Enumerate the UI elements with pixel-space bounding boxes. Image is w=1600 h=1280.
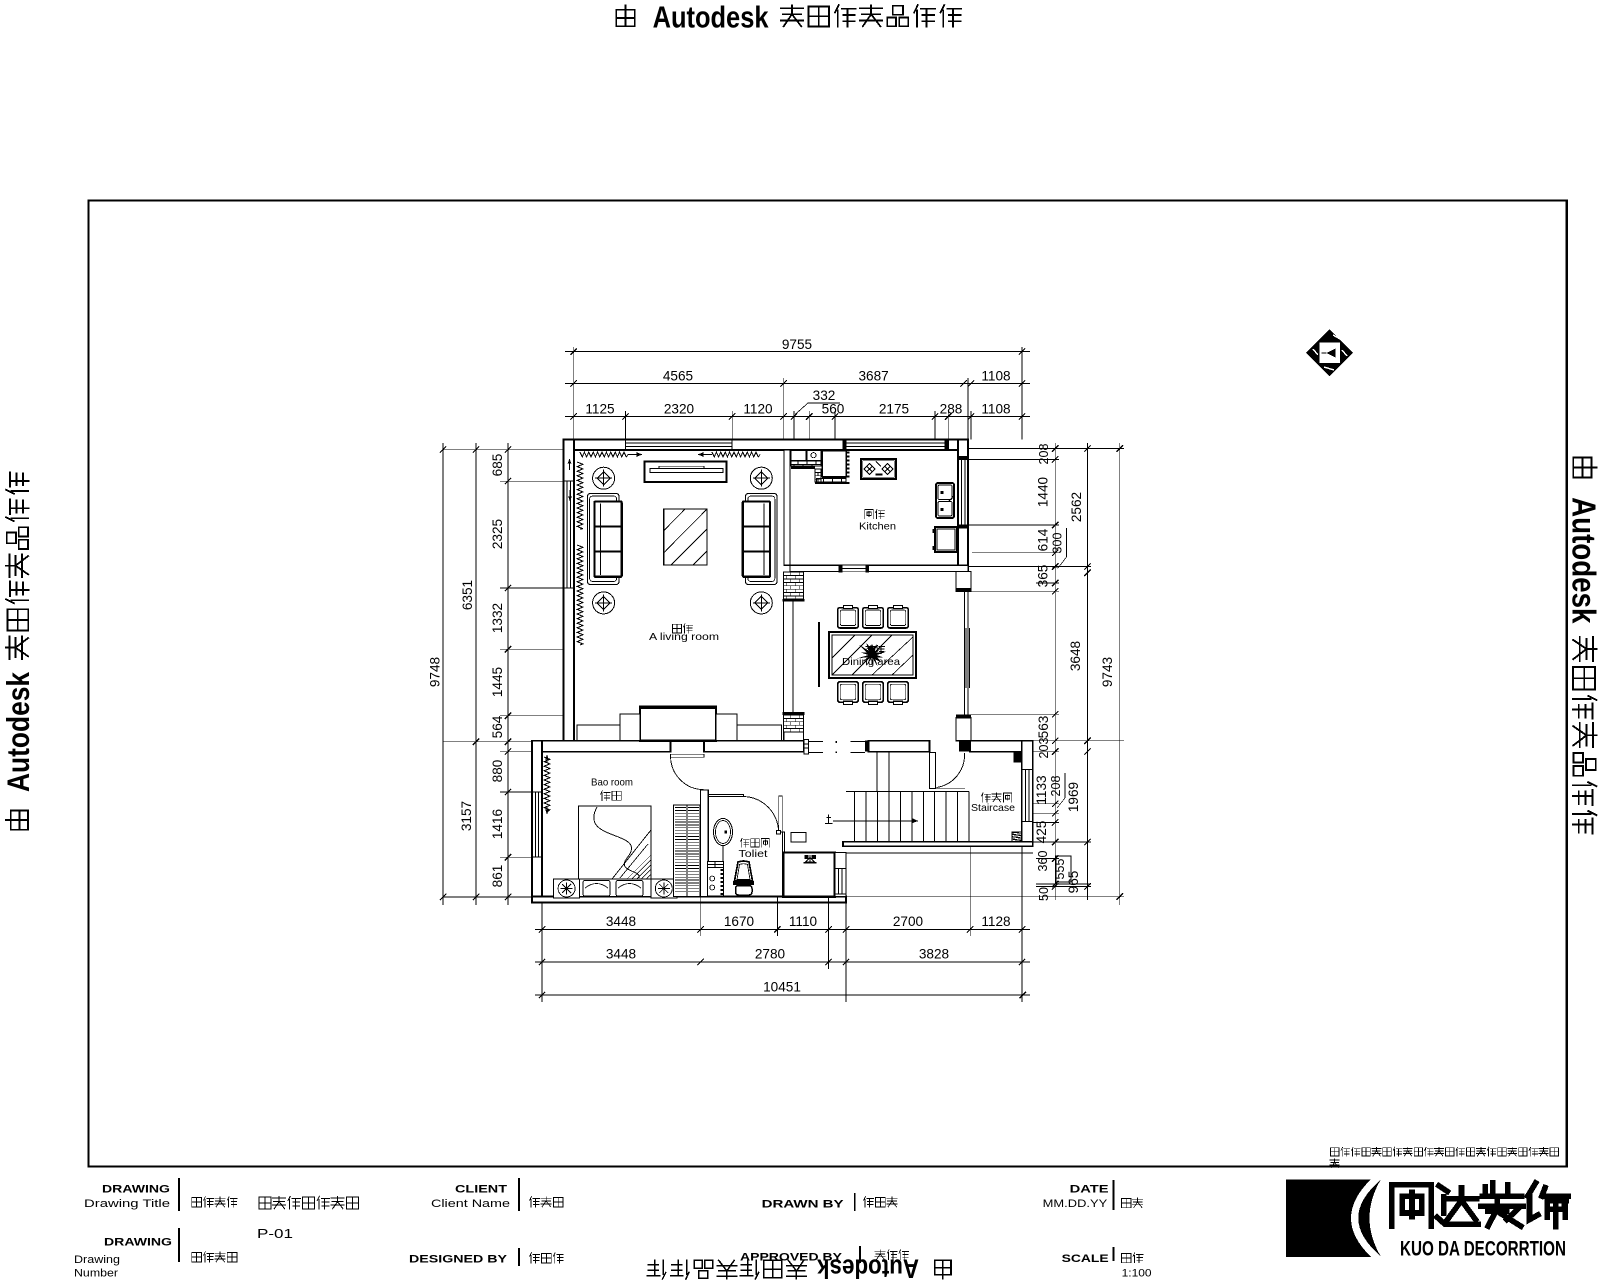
- svg-text:CLIENT: CLIENT: [455, 1184, 508, 1196]
- svg-text:3648: 3648: [1068, 641, 1083, 671]
- svg-text:360: 360: [1036, 851, 1050, 872]
- svg-text:Autodesk: Autodesk: [1, 672, 36, 792]
- svg-text:2320: 2320: [664, 402, 695, 417]
- svg-text:Drawing: Drawing: [74, 1254, 120, 1266]
- svg-text:1133: 1133: [1034, 775, 1049, 804]
- svg-text:288: 288: [940, 402, 963, 417]
- svg-text:2175: 2175: [879, 402, 909, 417]
- svg-text:9755: 9755: [782, 337, 812, 352]
- svg-text:2700: 2700: [893, 914, 924, 929]
- svg-text:Client Name: Client Name: [431, 1198, 510, 1210]
- svg-text:P-01: P-01: [257, 1227, 293, 1241]
- svg-text:555: 555: [1053, 859, 1067, 880]
- svg-text:2780: 2780: [755, 947, 786, 962]
- svg-text:DRAWN BY: DRAWN BY: [762, 1199, 845, 1211]
- svg-text:425: 425: [1034, 821, 1049, 844]
- svg-text:1969: 1969: [1066, 782, 1081, 812]
- svg-text:DATE: DATE: [1070, 1184, 1109, 1196]
- svg-text:208: 208: [1037, 444, 1051, 465]
- svg-text:1445: 1445: [490, 667, 505, 697]
- svg-text:2562: 2562: [1069, 492, 1084, 522]
- svg-text:880: 880: [490, 759, 505, 782]
- svg-text:10451: 10451: [763, 980, 801, 995]
- svg-text:9748: 9748: [428, 657, 443, 687]
- svg-text:203: 203: [1037, 738, 1051, 759]
- svg-text:1670: 1670: [724, 914, 755, 929]
- svg-text:1332: 1332: [490, 603, 505, 633]
- svg-text:DRAWING: DRAWING: [102, 1184, 170, 1196]
- svg-text:965: 965: [1066, 871, 1081, 894]
- svg-text:Drawing Title: Drawing Title: [84, 1198, 170, 1210]
- svg-text:50: 50: [1037, 887, 1051, 901]
- svg-text:MM.DD.YY: MM.DD.YY: [1043, 1198, 1108, 1210]
- svg-text:Number: Number: [74, 1268, 118, 1280]
- svg-text:1128: 1128: [981, 914, 1010, 929]
- svg-text:2325: 2325: [490, 519, 505, 549]
- svg-text:1120: 1120: [743, 402, 773, 417]
- svg-text:614: 614: [1036, 528, 1051, 551]
- svg-text:KUO DA DECORRTION: KUO DA DECORRTION: [1400, 1238, 1566, 1261]
- svg-text:Bao room: Bao room: [591, 777, 633, 789]
- svg-text:208: 208: [1049, 776, 1063, 797]
- svg-text:Kitchen: Kitchen: [859, 521, 896, 533]
- svg-text:1108: 1108: [981, 369, 1010, 384]
- svg-text:3448: 3448: [606, 947, 636, 962]
- svg-text:3157: 3157: [459, 801, 474, 831]
- svg-text:SCALE: SCALE: [1062, 1253, 1109, 1265]
- svg-text:9743: 9743: [1100, 657, 1115, 687]
- svg-text:4565: 4565: [663, 369, 693, 384]
- svg-text:1125: 1125: [585, 402, 614, 417]
- svg-text:6351: 6351: [460, 580, 475, 610]
- svg-text:564: 564: [490, 715, 505, 738]
- svg-text:DESIGNED BY: DESIGNED BY: [409, 1254, 508, 1266]
- svg-text:1416: 1416: [490, 809, 505, 839]
- svg-text:Toliet: Toliet: [739, 848, 768, 860]
- svg-text:APPROVED BY: APPROVED BY: [740, 1252, 843, 1264]
- svg-text:Autodesk: Autodesk: [1564, 497, 1600, 624]
- svg-text:563: 563: [1036, 716, 1051, 739]
- svg-text:3828: 3828: [919, 947, 949, 962]
- svg-text:685: 685: [490, 454, 505, 477]
- svg-text:1108: 1108: [981, 402, 1010, 417]
- svg-text:300: 300: [1051, 533, 1065, 554]
- svg-text:DRAWING: DRAWING: [104, 1237, 172, 1249]
- svg-text:365: 365: [1036, 565, 1051, 588]
- svg-text:A living room: A living room: [649, 631, 719, 643]
- svg-text:3687: 3687: [858, 369, 888, 384]
- svg-text:Staircase: Staircase: [971, 802, 1015, 814]
- svg-text:Dining area: Dining area: [842, 656, 900, 668]
- svg-text:1:100: 1:100: [1122, 1268, 1152, 1280]
- svg-text:560: 560: [822, 402, 845, 417]
- svg-text:3448: 3448: [606, 914, 636, 929]
- svg-text:1110: 1110: [789, 914, 818, 929]
- svg-text:861: 861: [490, 865, 505, 888]
- svg-text:Autodesk: Autodesk: [653, 0, 769, 34]
- svg-text:1440: 1440: [1036, 476, 1051, 507]
